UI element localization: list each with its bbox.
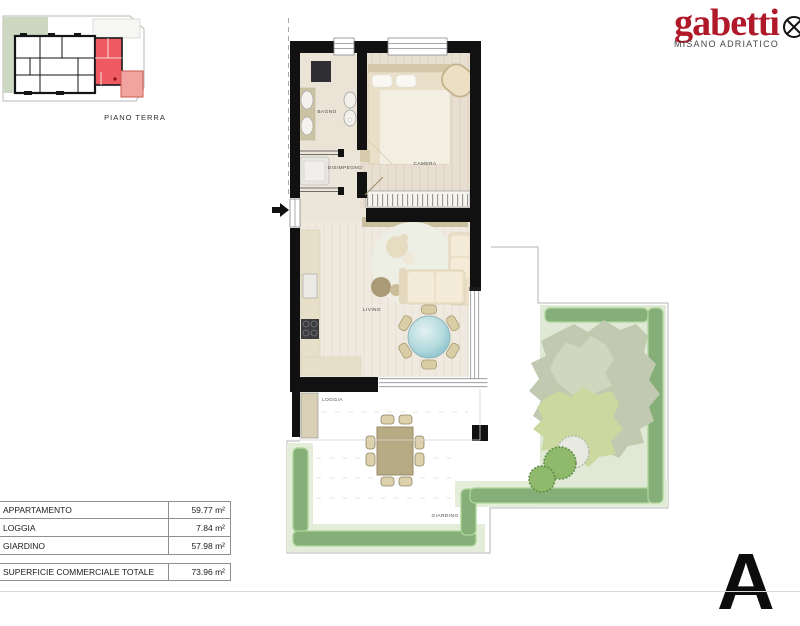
bathroom-sink bbox=[301, 91, 313, 109]
table-row: GIARDINO 57.98 m² bbox=[0, 537, 231, 555]
unit-label: A 3 bbox=[717, 542, 800, 622]
outdoor-chair bbox=[381, 477, 394, 486]
bed-pillow bbox=[396, 75, 416, 87]
outdoor-table bbox=[377, 427, 413, 475]
coffee-table bbox=[371, 277, 391, 297]
toilet bbox=[344, 92, 356, 108]
row-label: LOGGIA bbox=[0, 523, 168, 533]
brand-name: gabetti bbox=[674, 4, 779, 42]
washing-machine bbox=[311, 61, 331, 82]
brand-location: MISANO ADRIATICO bbox=[674, 39, 779, 49]
bathroom-sink bbox=[301, 117, 313, 135]
hedge bbox=[293, 531, 476, 546]
key-plan-other-units bbox=[93, 19, 140, 38]
window bbox=[388, 38, 447, 55]
key-plan-dot bbox=[113, 77, 116, 80]
kitchen-sink bbox=[303, 274, 317, 298]
windows bbox=[334, 38, 447, 55]
outdoor-dining-set bbox=[366, 415, 424, 486]
bed-pillow bbox=[372, 75, 392, 87]
loggia-pillar bbox=[301, 393, 318, 438]
dining-chair bbox=[422, 360, 437, 369]
bed-headboard bbox=[368, 64, 450, 72]
kitchen-counter bbox=[301, 230, 320, 375]
hedge bbox=[545, 308, 648, 322]
wardrobe bbox=[366, 191, 470, 207]
key-plan-building bbox=[15, 36, 95, 93]
total-value: 73.96 m² bbox=[168, 564, 230, 580]
outdoor-chair bbox=[399, 415, 412, 424]
shower-tray bbox=[304, 161, 325, 181]
row-value: 57.98 m² bbox=[168, 537, 230, 554]
areas-table: APPARTAMENTO 59.77 m² LOGGIA 7.84 m² GIA… bbox=[0, 501, 231, 581]
row-label: GIARDINO bbox=[0, 541, 168, 551]
room-label-loggia: LOGGIA bbox=[322, 397, 343, 403]
pouf bbox=[403, 253, 415, 265]
room-label-bagno: BAGNO bbox=[317, 109, 336, 115]
pouf bbox=[400, 234, 408, 242]
circle-x-icon bbox=[783, 15, 800, 41]
outdoor-chair bbox=[415, 436, 424, 449]
key-plan-caption: PIANO TERRA bbox=[104, 113, 166, 122]
logo: gabetti MISANO ADRIATICO bbox=[674, 4, 779, 49]
outdoor-chair bbox=[381, 415, 394, 424]
hedge bbox=[293, 448, 308, 532]
room-label-disimpegno: DISIMPEGNO bbox=[328, 165, 363, 171]
bush bbox=[529, 466, 555, 492]
outdoor-chair bbox=[399, 477, 412, 486]
dining-table bbox=[408, 316, 450, 358]
outdoor-chair bbox=[366, 436, 375, 449]
table-row: LOGGIA 7.84 m² bbox=[0, 519, 231, 537]
room-label-living: LIVING bbox=[363, 307, 381, 313]
key-plan-highlight-garden bbox=[121, 71, 143, 97]
dining-chair bbox=[422, 305, 437, 314]
frame-line bbox=[0, 591, 800, 592]
nightstand bbox=[360, 150, 370, 162]
table-row: APPARTAMENTO 59.77 m² bbox=[0, 501, 231, 519]
row-value: 59.77 m² bbox=[168, 502, 230, 518]
window bbox=[334, 38, 354, 55]
kitchen-counter bbox=[301, 357, 361, 375]
row-label: APPARTAMENTO bbox=[0, 505, 168, 515]
bidet-tap bbox=[348, 118, 352, 122]
total-label: SUPERFICIE COMMERCIALE TOTALE bbox=[0, 567, 168, 577]
key-plan-highlight-unit bbox=[95, 38, 122, 85]
room-label-camera: CAMERA bbox=[414, 161, 437, 167]
key-plan: PIANO TERRA bbox=[3, 16, 166, 122]
table-total-row: SUPERFICIE COMMERCIALE TOTALE 73.96 m² bbox=[0, 563, 231, 581]
hedge bbox=[470, 488, 652, 503]
bed-duvet bbox=[380, 90, 450, 164]
outdoor-chair bbox=[415, 453, 424, 466]
outdoor-chair bbox=[366, 453, 375, 466]
row-value: 7.84 m² bbox=[168, 519, 230, 536]
entrance-arrow-icon bbox=[272, 203, 289, 217]
room-label-giardino: GIARDINO bbox=[432, 513, 459, 519]
